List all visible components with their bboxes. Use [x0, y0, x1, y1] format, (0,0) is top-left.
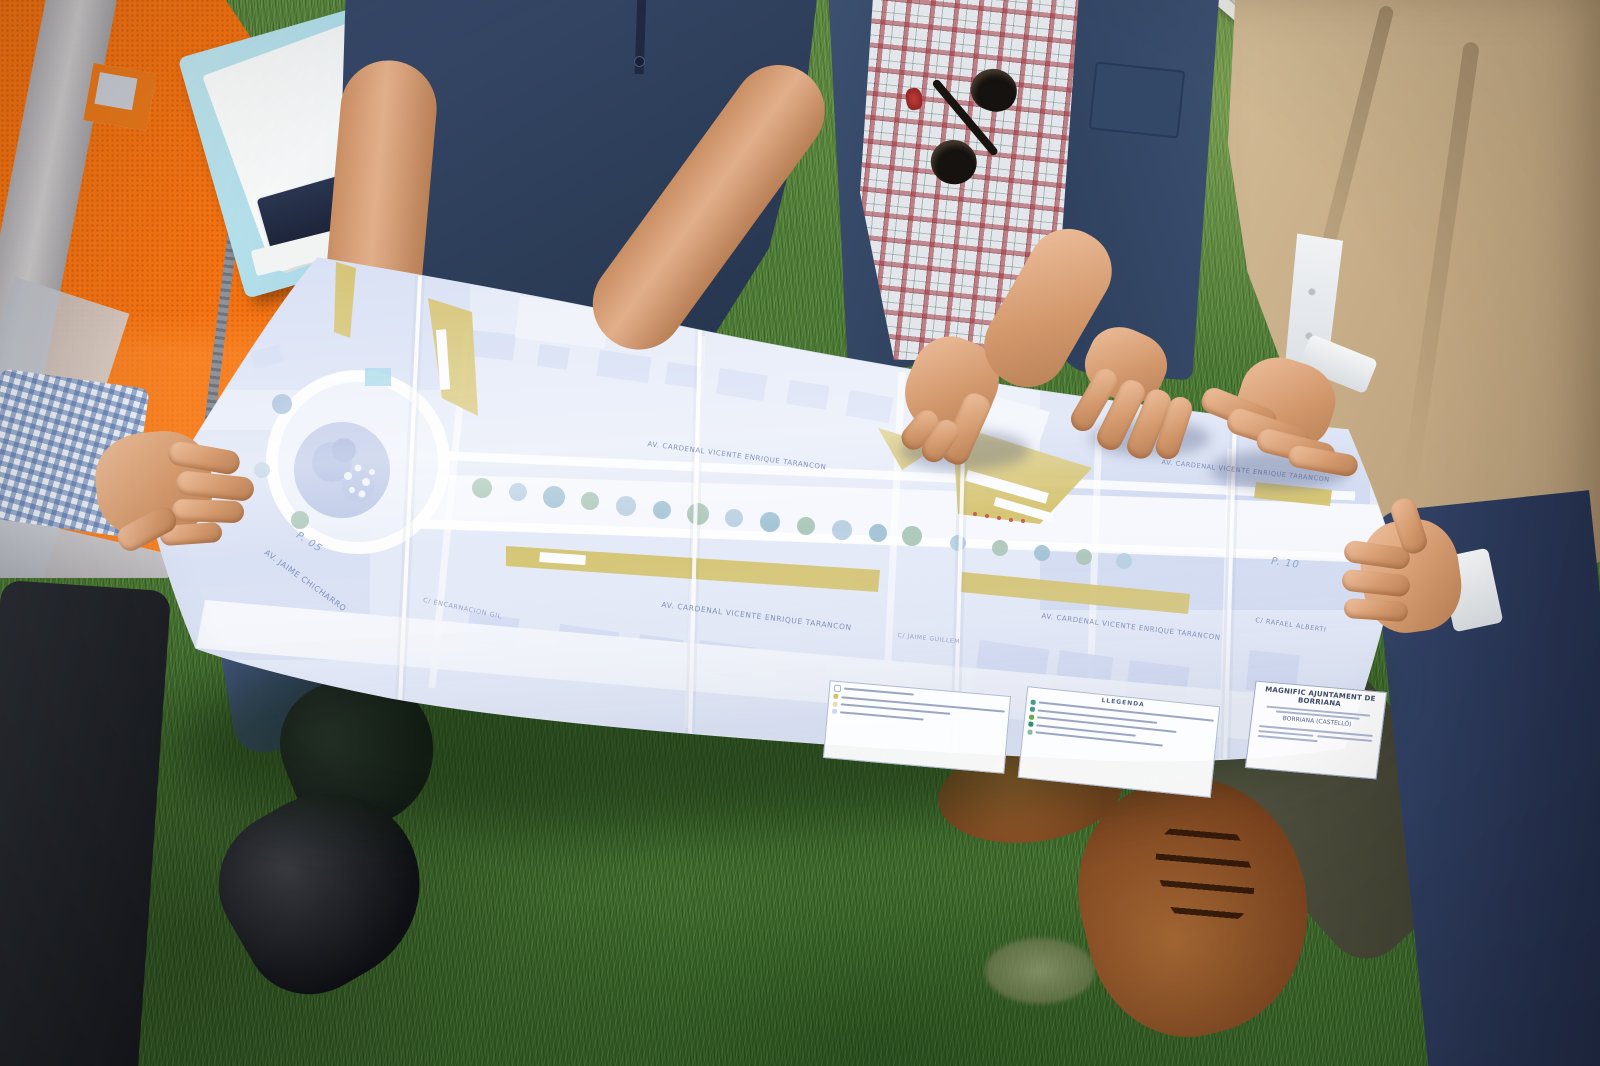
legend-box-left [823, 680, 1011, 774]
title-block: MAGNIFIC AJUNTAMENT DE BORRIANA BORRIANA… [1245, 681, 1387, 780]
finger [172, 499, 245, 523]
paper-sheen [150, 258, 1397, 761]
photo-scene: AV. CARDENAL VICENTE ENRIQUE TARANCON AV… [0, 0, 1600, 1066]
